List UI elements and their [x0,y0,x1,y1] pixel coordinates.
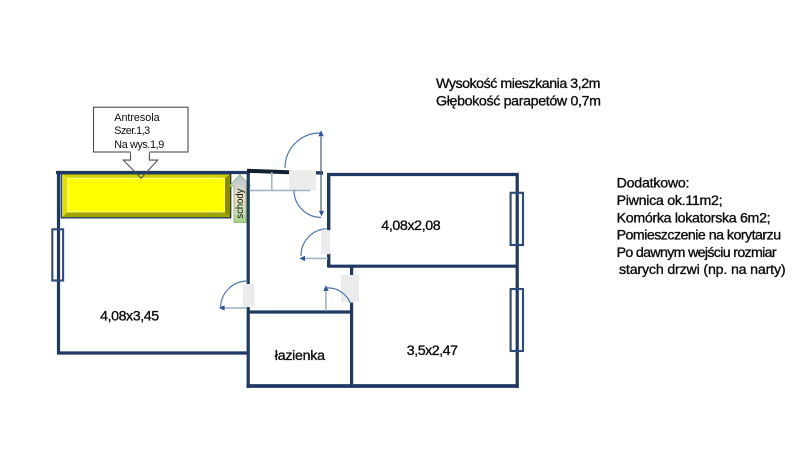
svg-text:Dodatkowo:: Dodatkowo: [617,176,690,192]
svg-text:łazienka: łazienka [275,348,325,364]
svg-text:Wysokość mieszkania 3,2m: Wysokość mieszkania 3,2m [436,76,601,92]
svg-text:Komórka lokatorska 6m2;: Komórka lokatorska 6m2; [617,210,771,226]
svg-text:3,5x2,47: 3,5x2,47 [407,343,458,359]
svg-text:Po dawnym wejściu rozmiar: Po dawnym wejściu rozmiar [617,245,777,261]
svg-text:Szer.1,3: Szer.1,3 [114,125,150,137]
svg-text:schody: schody [235,188,246,218]
svg-text:Na wys.1,9: Na wys.1,9 [114,139,164,151]
svg-text:Pomieszczenie na korytarzu: Pomieszczenie na korytarzu [617,228,782,244]
svg-text:Antresola: Antresola [114,112,159,124]
svg-text:Piwnica ok.11m2;: Piwnica ok.11m2; [617,193,723,209]
svg-text:Głębokość parapetów 0,7m: Głębokość parapetów 0,7m [436,94,601,110]
svg-text:4,08x2,08: 4,08x2,08 [381,218,441,234]
svg-text:starych drzwi (np. na narty): starych drzwi (np. na narty) [619,262,786,278]
svg-text:4,08x3,45: 4,08x3,45 [100,309,159,325]
